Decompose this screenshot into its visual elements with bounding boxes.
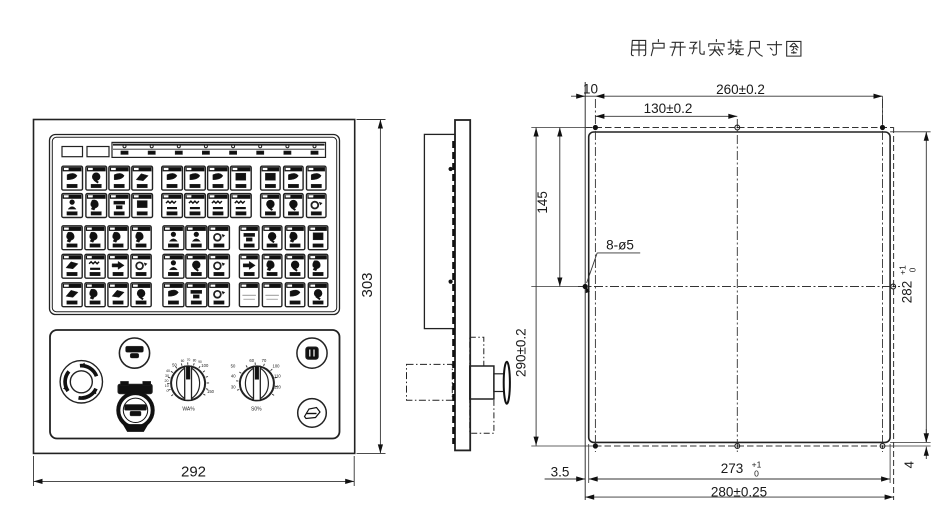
svg-text:60: 60: [181, 359, 185, 363]
svg-text:70: 70: [262, 358, 267, 363]
svg-text:280±0.25: 280±0.25: [711, 484, 767, 499]
svg-text:90: 90: [198, 360, 202, 364]
svg-text:0: 0: [167, 389, 169, 393]
svg-text:0: 0: [754, 469, 759, 479]
svg-text:3.5: 3.5: [551, 464, 570, 479]
svg-text:4: 4: [902, 461, 917, 468]
svg-text:145: 145: [535, 191, 550, 214]
svg-text:30: 30: [165, 374, 169, 378]
svg-text:273: 273: [721, 461, 744, 476]
svg-text:292: 292: [181, 464, 206, 481]
svg-text:50: 50: [172, 363, 177, 368]
svg-text:10: 10: [583, 81, 598, 96]
svg-text:40: 40: [166, 369, 170, 373]
svg-text:100: 100: [273, 363, 281, 368]
svg-text:130±0.2: 130±0.2: [644, 101, 693, 116]
svg-text:303: 303: [359, 272, 376, 297]
svg-text:60: 60: [249, 358, 254, 363]
svg-text:WA%: WA%: [182, 407, 195, 413]
svg-text:150: 150: [207, 389, 215, 394]
svg-text:100: 100: [201, 363, 209, 368]
svg-text:290±0.2: 290±0.2: [514, 328, 529, 377]
svg-text:110: 110: [274, 374, 281, 379]
svg-text:260±0.2: 260±0.2: [716, 82, 765, 97]
svg-text:120: 120: [274, 385, 282, 390]
svg-text:8-ø5: 8-ø5: [606, 238, 634, 253]
svg-text:S0%: S0%: [251, 407, 262, 413]
svg-text:80: 80: [193, 358, 197, 362]
svg-text:0: 0: [908, 267, 918, 272]
svg-text:20: 20: [165, 379, 169, 383]
svg-text:+1: +1: [898, 265, 908, 275]
svg-text:10: 10: [165, 384, 169, 388]
svg-text:70: 70: [187, 358, 191, 362]
svg-text:40: 40: [231, 374, 236, 379]
svg-text:30: 30: [231, 385, 236, 390]
svg-text:282: 282: [900, 281, 915, 304]
svg-text:50: 50: [231, 363, 236, 368]
